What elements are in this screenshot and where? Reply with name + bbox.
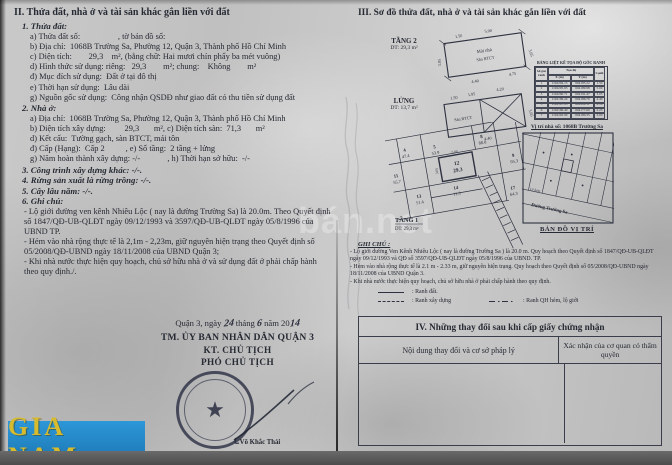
diagram-note-compliance: - Khi nhà nước thực hiện quy hoạch, chủ … xyxy=(350,279,666,287)
parcel-term-line: e) Thời hạn sử dụng: Lâu dài xyxy=(30,83,332,93)
section-4-headers: Nội dung thay đổi và cơ sở pháp lý Xác n… xyxy=(359,336,661,364)
date-month-word: tháng xyxy=(236,318,255,328)
diagram-notes-block: GHI CHÚ : - Lộ giới đường Ven Kênh Nhiêu… xyxy=(350,241,666,306)
legend-construction-boundary: : Ranh xây dựng xyxy=(412,298,451,306)
parcel-area-line: c) Diện tích: 29,3 m², (bằng chữ: Hai mư… xyxy=(30,52,332,62)
note-road-boundary: - Lộ giới đường ven kênh Nhiêu Lộc ( nay… xyxy=(24,207,332,237)
section-3-title: III. Sơ đồ thửa đất, nhà ở và tài sản kh… xyxy=(358,8,586,18)
legend-solid-line-icon xyxy=(378,292,404,293)
handwritten-day: 24 xyxy=(223,318,234,330)
handwritten-year: 14 xyxy=(289,318,300,330)
section-2-block: II. Thửa đất, nhà ở và tài sản khác gắn … xyxy=(14,7,332,277)
notes-heading: 6. Ghi chú: xyxy=(22,196,332,207)
location-map-title: Vị trí nhà số: 1068B Trường Sa xyxy=(518,124,616,130)
map-alley-label: Lề hẻm xyxy=(530,187,541,193)
section-4-empty-body xyxy=(359,364,661,443)
parcel-area: 88.0 xyxy=(478,139,487,145)
parcel-address-line: b) Địa chỉ: 1068B Trường Sa, Phường 12, … xyxy=(30,42,332,52)
land-certificate-photo: II. Thửa đất, nhà ở và tài sản khác gắn … xyxy=(0,0,672,465)
photo-left-edge xyxy=(0,0,6,465)
tang1-area: DT: 29,3 m² xyxy=(395,226,419,232)
coord-row-x: 1192202.90 xyxy=(548,113,571,118)
lung-label: LỬNG DT: 13,7 m² xyxy=(382,98,426,112)
other-works-heading: 3. Công trình xây dựng khác: -/-. xyxy=(22,165,332,176)
col-coord-header: Tọa độ xyxy=(548,67,594,75)
parcel-area: 53.9 xyxy=(431,150,440,156)
tang2-area: DT: 29,3 m² xyxy=(382,45,426,52)
signer-name: Võ Khắc Thái xyxy=(200,439,320,446)
house-address-line: a) Địa chỉ: 1068B Trường Sa, Phường 12, … xyxy=(30,114,332,124)
house-grade-line: đ) Cấp (Hạng): Cấp 2 , e) Số tầng: 2 tần… xyxy=(30,144,332,154)
legend-planning-boundary: : Ranh QH hẻm, lộ giới xyxy=(523,298,578,306)
coord-row-y: 604180.35 xyxy=(571,113,594,118)
parcel-area: 95.3 xyxy=(510,158,519,164)
handwritten-month: 6 xyxy=(256,318,262,330)
parcel-area: 55.7 xyxy=(393,179,402,185)
coordinate-table-block: BẢNG LIỆT KÊ TỌA ĐỘ GÓC RANH Số góc ranh… xyxy=(534,60,608,120)
parcel-number-line: a) Thửa đất số: , tờ bản đồ số: xyxy=(30,32,332,42)
house-structure-line: d) Kết cấu: Tường gạch, sàn BTCT, mái tô… xyxy=(30,134,332,144)
parcel-purpose-line: đ) Mục đích sử dụng: Đất ở tại đô thị xyxy=(30,72,332,82)
tang2-slab-text: Sàn BTCT xyxy=(476,55,495,63)
coord-row-edge: 3.00 xyxy=(594,113,605,118)
tang2-label: TẦNG 2 DT: 29,3 m² xyxy=(382,38,426,52)
parcel-area: 11.3 xyxy=(453,190,462,196)
legend-row-2: : Ranh xây dựng : Ranh QH hẻm, lộ giới xyxy=(378,298,666,306)
note-alley-width: - Hẻm vào nhà rộng thực tế là 2,1m - 2,2… xyxy=(24,237,332,257)
signature-stroke xyxy=(228,376,320,446)
legend-row-1: : Ranh đất. xyxy=(378,289,666,297)
photo-top-edge xyxy=(0,0,672,5)
section-2-title: II. Thửa đất, nhà ở và tài sản khác gắn … xyxy=(14,7,332,19)
location-map-caption: BẢN ĐỒ VỊ TRÍ xyxy=(518,226,616,233)
parcel-area: 47.4 xyxy=(401,153,410,159)
parcel-area: 51.4 xyxy=(416,199,425,205)
parcel-area: 64.3 xyxy=(510,191,519,197)
note-planning-compliance: - Khi nhà nước thực hiện quy hoạch, chủ … xyxy=(24,257,332,277)
photo-bottom-band xyxy=(0,451,672,465)
tang2-dim: 3.05 xyxy=(437,59,442,67)
date-year-word: năm 20 xyxy=(264,318,290,328)
date-place: Quận 3, ngày xyxy=(175,318,221,328)
perennial-heading: 5. Cây lâu năm: -/-. xyxy=(22,186,332,197)
section-4-title: IV. Những thay đổi sau khi cấp giấy chứn… xyxy=(359,317,661,336)
section-4-col1-header: Nội dung thay đổi và cơ sở pháp lý xyxy=(359,337,559,363)
parcel-origin-line: g) Nguồn gốc sử dụng: Công nhận QSDĐ như… xyxy=(30,93,332,103)
tang2-dim: 5.00 xyxy=(484,28,492,34)
lung-area: DT: 13,7 m² xyxy=(382,105,426,112)
parcel-usage-form-line: d) Hình thức sử dụng: riêng: 29,3 m²; ch… xyxy=(30,62,332,72)
house-year-line: g) Năm hoàn thành xây dựng: -/- , h) Thờ… xyxy=(30,154,332,164)
tang1-name: TẦNG 1 xyxy=(395,216,418,224)
tang2-roof-text: Mái nhà xyxy=(476,47,492,54)
map-street-label: Đường Trường Sa xyxy=(531,203,569,216)
diagram-note-road: - Lộ giới đường Ven Kênh Nhiêu Lộc ( nay… xyxy=(350,249,666,264)
lung-dim: 4.20 xyxy=(496,86,504,92)
legend-dashed-line-icon xyxy=(378,301,404,302)
tang2-name: TẦNG 2 xyxy=(382,38,426,45)
lung-name: LỬNG xyxy=(382,98,426,105)
col-corner-header: Số góc ranh xyxy=(535,67,548,81)
tang2-dim: 4.75 xyxy=(508,71,516,77)
col-edge-header: Cạnh xyxy=(594,67,605,81)
legend-land-boundary: : Ranh đất. xyxy=(412,289,438,297)
forest-heading: 4. Rừng sản xuất là rừng trồng: -/-. xyxy=(22,175,332,186)
section-3-block: III. Sơ đồ thửa đất, nhà ở và tài sản kh… xyxy=(340,0,672,465)
fold-crease xyxy=(336,220,338,451)
tang2-dim: 1.50 xyxy=(455,33,463,39)
lung-dim: 1.95 xyxy=(468,91,476,97)
coordinate-table-title: BẢNG LIỆT KÊ TỌA ĐỘ GÓC RANH xyxy=(534,60,608,65)
tang2-floor-plan: Mái nhà Sàn BTCT 1.50 5.00 3.05 4.40 4.7… xyxy=(426,24,544,88)
legend-dashdot-line-icon xyxy=(489,301,515,302)
tang1-dim: 5.00 xyxy=(451,149,458,154)
coord-row-number: 7 xyxy=(535,113,548,118)
parcel-heading: 1. Thửa đất: xyxy=(22,21,332,32)
house-heading: 2. Nhà ở: xyxy=(22,103,332,114)
subject-parcel-id: 12 xyxy=(454,160,461,167)
section-4-table: IV. Những thay đổi sau khi cấp giấy chứn… xyxy=(358,316,662,446)
coordinate-table: Số góc ranh Tọa độ Cạnh X (m) Y (m) 1 11… xyxy=(534,66,608,120)
location-map: Lề hẻm Đường Trường Sa xyxy=(522,132,614,224)
diagram-note-alley: - Hẻm vào nhà rộng thực tế là 2.1 m - 2.… xyxy=(350,264,666,279)
subject-parcel-area: 29.3 xyxy=(453,167,464,175)
section-4-col2-header: Xác nhận của cơ quan có thẩm quyền xyxy=(559,337,661,363)
house-area-line: b) Diện tích xây dựng: 29,3 m², c) Diện … xyxy=(30,124,332,134)
tang2-dim: 3.05 xyxy=(528,49,535,58)
diagram-notes-title: GHI CHÚ : xyxy=(358,241,666,249)
lung-dim: 1.50 xyxy=(450,95,458,101)
tang2-dim: 4.40 xyxy=(471,78,479,84)
tang1-dim: 3.05 xyxy=(435,168,440,175)
